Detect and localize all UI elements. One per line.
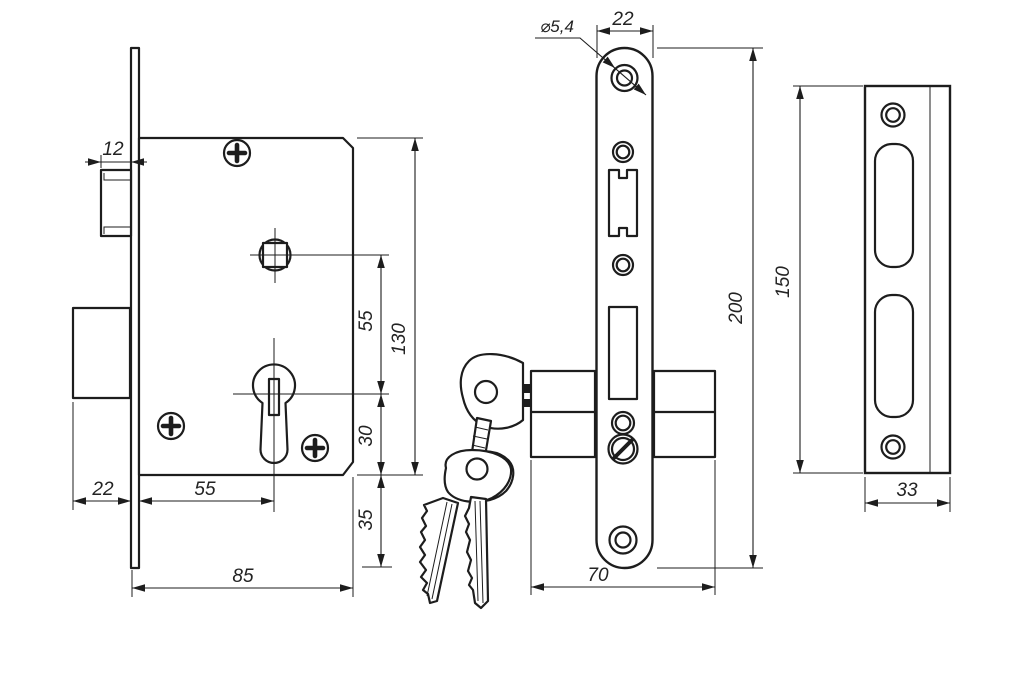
deadbolt-cutout <box>875 295 913 417</box>
dim-label: 35 <box>356 509 377 531</box>
faceplate-edge <box>131 48 139 568</box>
drawing-canvas: 12 55 30 35 130 22 <box>0 0 1024 682</box>
lock-technical-drawing: 12 55 30 35 130 22 <box>0 0 1024 682</box>
phillips-screw-icon <box>158 413 184 439</box>
key-bow-hole <box>475 381 497 403</box>
dim-label: 70 <box>587 565 609 586</box>
latch-opening <box>609 170 637 236</box>
latch-cutout <box>875 144 913 267</box>
key-ring <box>467 459 488 480</box>
dim-label: 22 <box>91 479 114 500</box>
dim-label: 85 <box>232 566 254 587</box>
faceplate-screw-hole <box>610 527 637 554</box>
dim-label: 55 <box>194 479 216 500</box>
dim-label: 30 <box>356 425 377 447</box>
strike-screw-hole <box>882 436 905 459</box>
dim-label: 12 <box>102 139 124 160</box>
dim-label: 200 <box>726 292 747 325</box>
dim-label: ⌀5,4 <box>540 17 574 36</box>
dim-label: 22 <box>611 9 634 30</box>
inserted-key <box>461 354 531 429</box>
adjust-hole <box>613 255 633 275</box>
phillips-screw-icon <box>302 435 328 461</box>
deadbolt-opening <box>609 307 637 399</box>
strike-plate <box>865 86 950 473</box>
strike-screw-hole <box>882 104 905 127</box>
dim-label: 55 <box>356 310 377 332</box>
dim-label: 130 <box>389 323 410 355</box>
cylinder-fixing-hole <box>612 412 634 434</box>
deadbolt <box>73 308 130 398</box>
adjust-hole <box>613 142 633 162</box>
slotted-screw-icon <box>609 435 638 464</box>
phillips-screw-icon <box>224 140 250 166</box>
dim-label: 33 <box>896 480 918 501</box>
dim-label: 150 <box>773 266 794 298</box>
